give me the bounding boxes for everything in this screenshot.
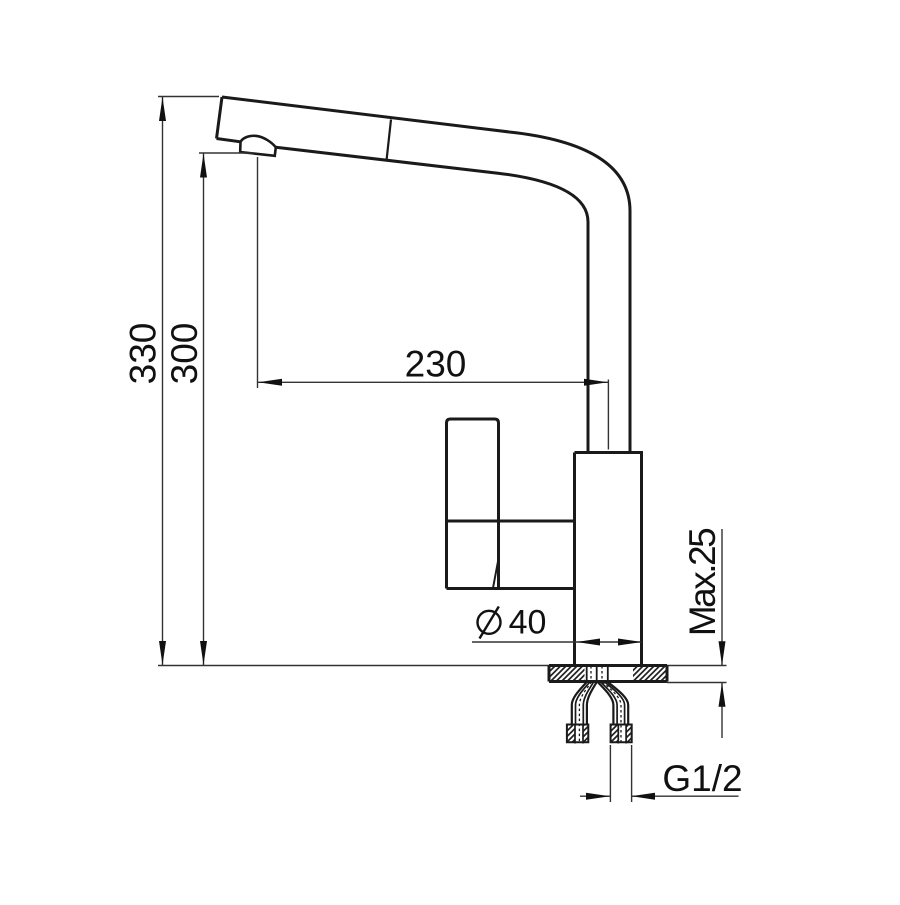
svg-text:G1/2: G1/2	[662, 758, 742, 799]
svg-text:40: 40	[509, 604, 547, 642]
svg-text:Max.25: Max.25	[682, 528, 723, 636]
svg-text:230: 230	[405, 343, 467, 384]
svg-text:330: 330	[123, 323, 164, 385]
svg-text:300: 300	[164, 323, 205, 385]
